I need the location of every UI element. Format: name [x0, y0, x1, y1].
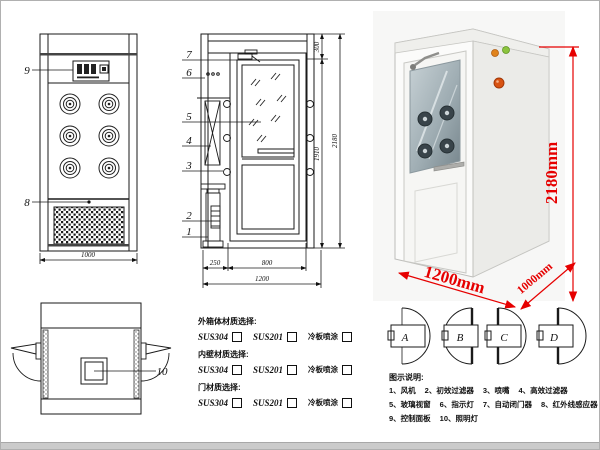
checkbox-door-sus201[interactable]: [287, 398, 297, 408]
legend-item-5: 5、玻璃视窗: [389, 398, 431, 412]
legend-item-4: 4、高效过滤器: [519, 384, 568, 398]
callout-7: 7: [186, 49, 192, 61]
door-option-B: B: [442, 308, 478, 364]
legend-row: 1、风机 2、初效过滤器 3、喷嘴 4、高效过滤器: [389, 384, 599, 398]
material-selection-block: 外箱体材质选择: SUS304 SUS201 冷板喷涂 内壁材质选择: SUS3…: [198, 315, 380, 414]
callout-3: 3: [185, 160, 192, 172]
dim-text-300: 300: [313, 41, 321, 53]
top-view-drawing: 10: [11, 303, 171, 414]
callout-10: 10: [157, 366, 169, 378]
option-label-sus304: SUS304: [198, 332, 228, 342]
product-photo: 2180mm 1200mm 1000mm: [373, 11, 579, 309]
material-group-outer-box: 外箱体材质选择: SUS304 SUS201 冷板喷涂: [198, 315, 380, 345]
checkbox-door-sus304[interactable]: [232, 398, 242, 408]
checkbox-door-coldplate[interactable]: [342, 398, 352, 408]
material-group-door: 门材质选择: SUS304 SUS201 冷板喷涂: [198, 381, 380, 411]
section-view-drawing: 7 6 5 4 3 2 1 250 800 1200: [182, 34, 345, 288]
material-group-inner-wall: 内壁材质选择: SUS304 SUS201 冷板喷涂: [198, 348, 380, 378]
front-view-drawing: 9 8 1000: [24, 34, 137, 264]
checkbox-outer-coldplate[interactable]: [342, 332, 352, 342]
callout-4: 4: [186, 135, 192, 147]
legend-row: 5、玻璃视窗 6、指示灯 7、自动闭门器 8、红外线感应器: [389, 398, 599, 412]
dim-text-250: 250: [210, 259, 221, 267]
door-option-A-label: A: [401, 332, 409, 344]
door-option-C: C: [485, 308, 526, 364]
callout-9: 9: [24, 65, 30, 77]
callout-6: 6: [186, 67, 192, 79]
door-option-B-label: B: [457, 332, 464, 344]
legend-title: 图示说明:: [389, 371, 599, 384]
dim-text-800: 800: [262, 259, 273, 267]
legend-item-6: 6、指示灯: [440, 398, 474, 412]
section-leader-lines: [182, 60, 261, 237]
option-label-coldplate: 冷板喷涂: [308, 328, 338, 345]
air-shower-spec-sheet: 9 8 1000: [0, 0, 600, 450]
legend-item-3: 3、喷嘴: [483, 384, 510, 398]
orange-indicator-light: [492, 50, 499, 57]
indicator-lights-dots: [207, 73, 220, 76]
door-option-diagrams: A B C D: [388, 308, 586, 364]
legend-item-2: 2、初效过滤器: [425, 384, 474, 398]
swing-door-left: [11, 343, 41, 381]
option-label-sus201: SUS201: [253, 332, 283, 342]
nozzles-front: [60, 94, 119, 178]
door-option-C-label: C: [500, 332, 508, 344]
dim-text-1000: 1000: [81, 251, 96, 259]
door-glass: [242, 65, 294, 157]
option-label-sus304: SUS304: [198, 398, 228, 408]
legend-item-7: 7、自动闭门器: [483, 398, 532, 412]
door-option-A: A: [388, 308, 430, 364]
option-label-sus201: SUS201: [253, 398, 283, 408]
dim-text-2180: 2180: [331, 134, 339, 149]
door-option-D-label: D: [549, 332, 558, 344]
ir-sensor-dot: [87, 200, 90, 203]
material-group-title: 外箱体材质选择:: [198, 315, 380, 328]
door-handle: [258, 149, 294, 153]
callout-5: 5: [186, 111, 192, 123]
emergency-knob: [494, 78, 504, 88]
legend-item-1: 1、风机: [389, 384, 416, 398]
legend-block: 图示说明: 1、风机 2、初效过滤器 3、喷嘴 4、高效过滤器 5、玻璃视窗 6…: [389, 371, 599, 426]
checkbox-outer-sus304[interactable]: [232, 332, 242, 342]
option-label-sus201: SUS201: [253, 365, 283, 375]
dim-section-right: [307, 34, 345, 248]
return-air-grille: [54, 207, 124, 244]
door-option-D: D: [537, 308, 586, 364]
top-seam-band: [40, 53, 137, 56]
option-label-coldplate: 冷板喷涂: [308, 361, 338, 378]
filter-pedestal: [201, 184, 225, 247]
checkbox-inner-coldplate[interactable]: [342, 365, 352, 375]
checkbox-outer-sus201[interactable]: [287, 332, 297, 342]
legend-item-9: 9、控制面板: [389, 412, 431, 426]
callout-8: 8: [24, 197, 30, 209]
bottom-border-strip: [1, 442, 600, 449]
control-panel: [73, 61, 109, 81]
checkbox-inner-sus201[interactable]: [287, 365, 297, 375]
option-label-coldplate: 冷板喷涂: [308, 394, 338, 411]
legend-row: 9、控制面板 10、照明灯: [389, 412, 599, 426]
checkbox-inner-sus304[interactable]: [232, 365, 242, 375]
material-group-title: 门材质选择:: [198, 381, 380, 394]
hepa-fan-box: [197, 98, 230, 165]
legend-item-10: 10、照明灯: [440, 412, 478, 426]
callout-1: 1: [186, 226, 192, 238]
callout-2: 2: [186, 210, 192, 222]
cabinet-side-face: [473, 41, 549, 277]
legend-item-8: 8、红外线感应器: [541, 398, 598, 412]
option-label-sus304: SUS304: [198, 365, 228, 375]
dim-text-1910: 1910: [313, 147, 321, 162]
material-group-title: 内壁材质选择:: [198, 348, 380, 361]
photo-door: [404, 51, 466, 273]
photo-dim-height-label: 2180mm: [542, 142, 561, 204]
green-indicator-light: [503, 47, 510, 54]
dim-text-1200: 1200: [255, 275, 270, 283]
door-section: [230, 53, 306, 241]
